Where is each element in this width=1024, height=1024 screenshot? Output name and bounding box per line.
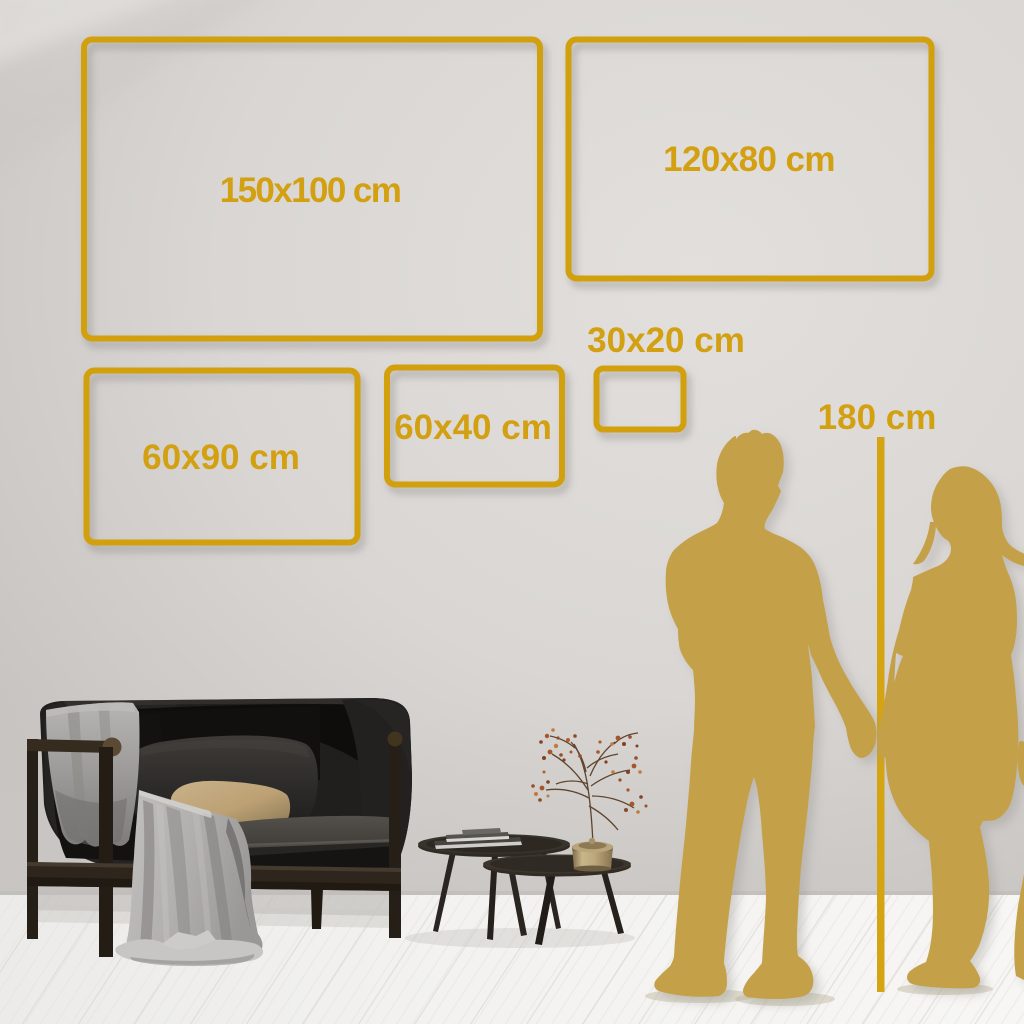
svg-text:120x80 cm: 120x80 cm [663, 140, 835, 179]
svg-text:30x20 cm: 30x20 cm [587, 321, 745, 360]
svg-text:60x40 cm: 60x40 cm [394, 408, 552, 447]
svg-text:60x90 cm: 60x90 cm [142, 438, 300, 477]
svg-text:150x100 cm: 150x100 cm [220, 171, 401, 210]
svg-text:180 cm: 180 cm [818, 398, 937, 437]
